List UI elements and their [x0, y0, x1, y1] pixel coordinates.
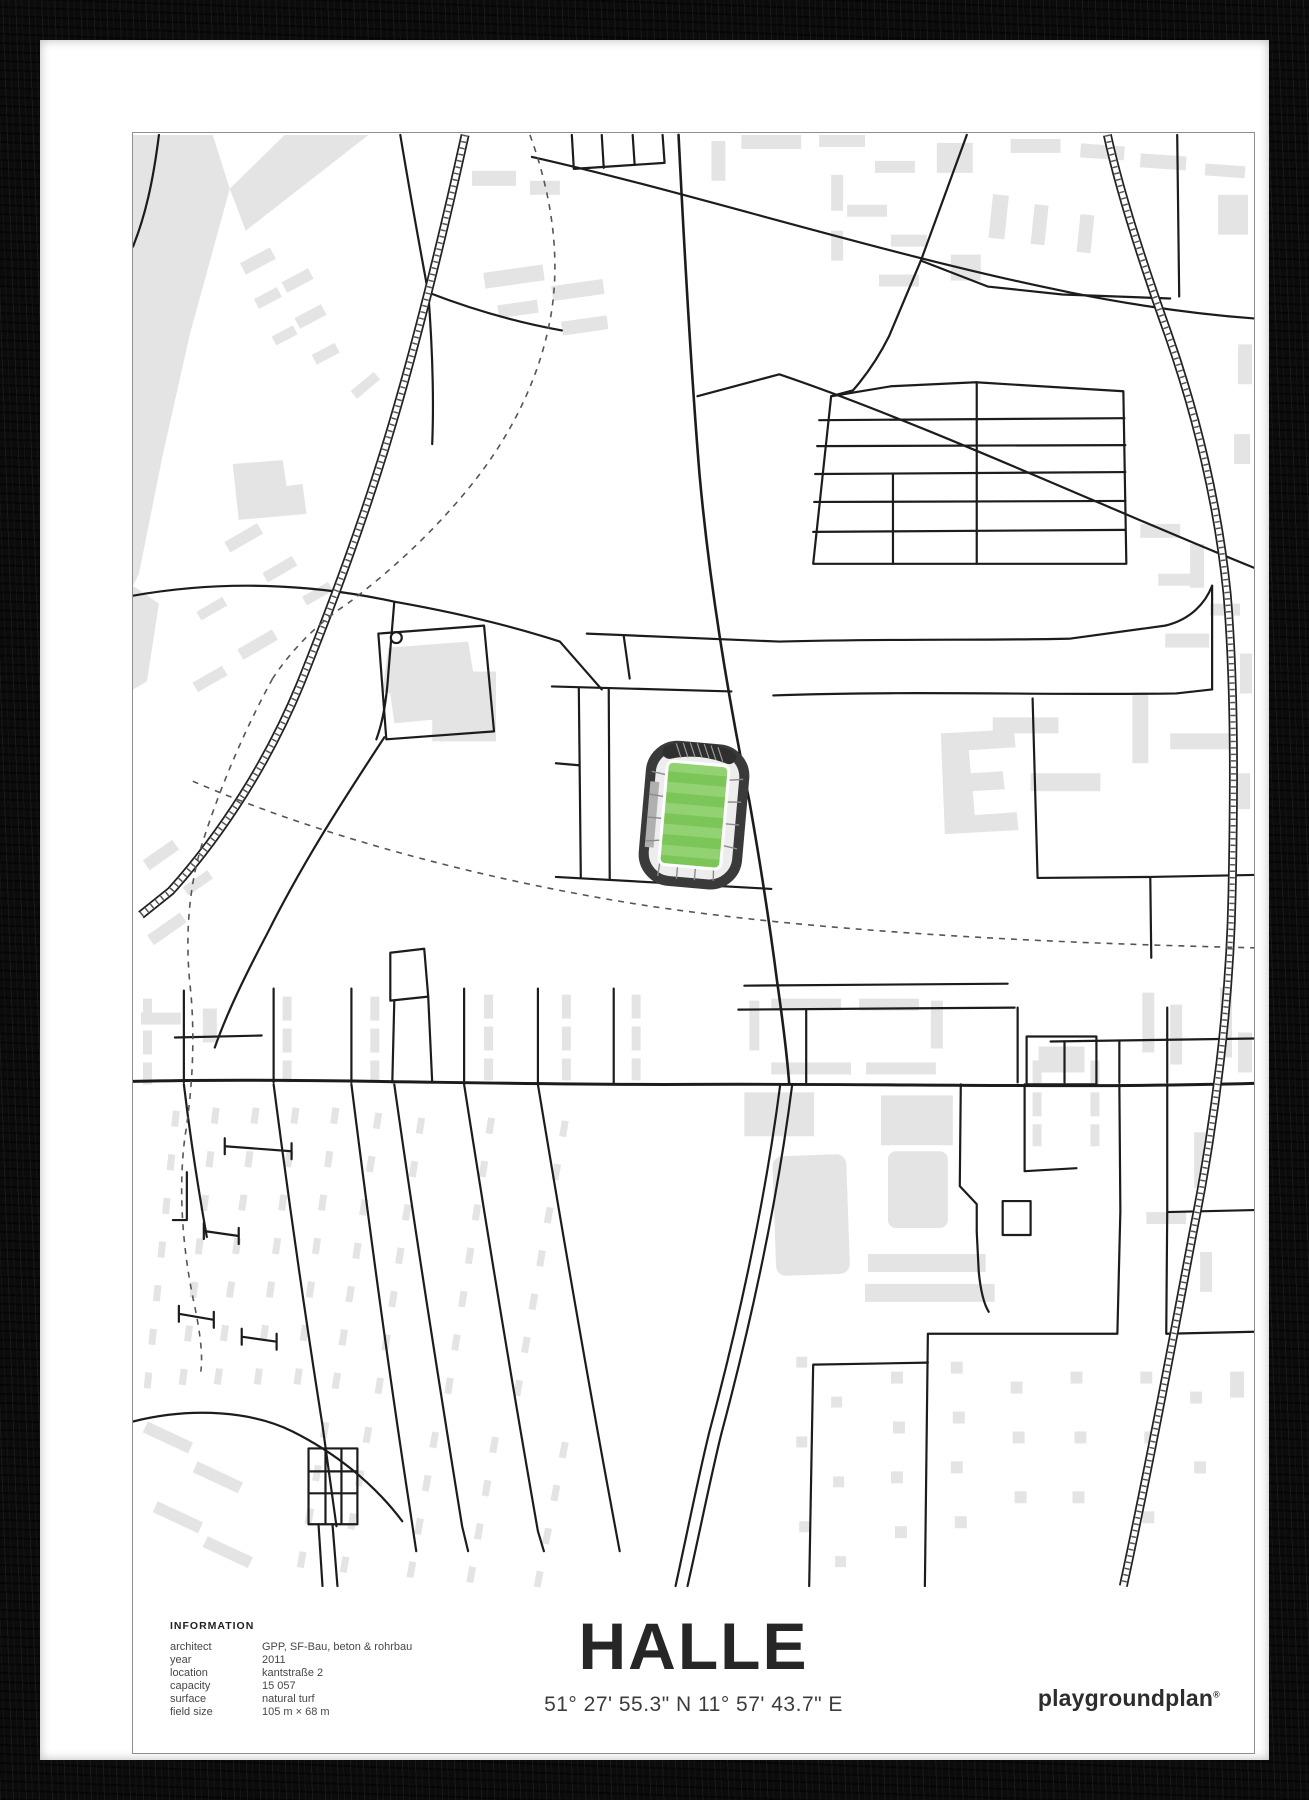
stadium: [642, 740, 745, 886]
stadium-west-stand: [649, 782, 655, 848]
poster-content: INFORMATION architect GPP, SF-Bau, beton…: [132, 132, 1255, 1754]
brand-logo: playgroundplan®: [1038, 1685, 1220, 1712]
poster-mat: INFORMATION architect GPP, SF-Bau, beton…: [40, 40, 1269, 1760]
city-map: [133, 133, 1254, 1588]
framed-poster: INFORMATION architect GPP, SF-Bau, beton…: [0, 0, 1309, 1800]
poster-title: HALLE: [133, 1613, 1254, 1679]
stadium-pitch: [659, 761, 730, 870]
map-svg: [133, 133, 1254, 1588]
registered-mark: ®: [1213, 1689, 1220, 1699]
